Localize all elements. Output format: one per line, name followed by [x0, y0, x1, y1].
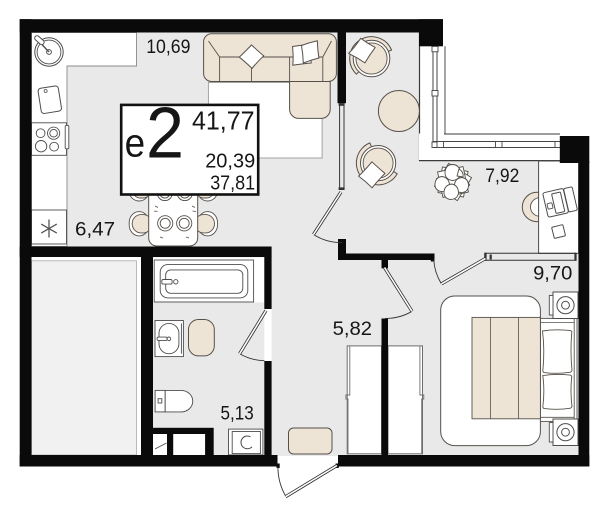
svg-text:5,13: 5,13: [221, 403, 254, 424]
svg-text:е: е: [125, 122, 146, 166]
svg-text:37,81: 37,81: [210, 172, 255, 194]
svg-text:9,70: 9,70: [533, 263, 572, 284]
svg-text:7,92: 7,92: [485, 166, 519, 187]
svg-text:6,47: 6,47: [75, 220, 115, 241]
svg-text:41,77: 41,77: [192, 106, 255, 136]
svg-text:2: 2: [146, 92, 184, 173]
svg-text:5,82: 5,82: [333, 319, 372, 340]
svg-text:10,69: 10,69: [146, 37, 190, 58]
svg-text:20,39: 20,39: [205, 150, 255, 172]
